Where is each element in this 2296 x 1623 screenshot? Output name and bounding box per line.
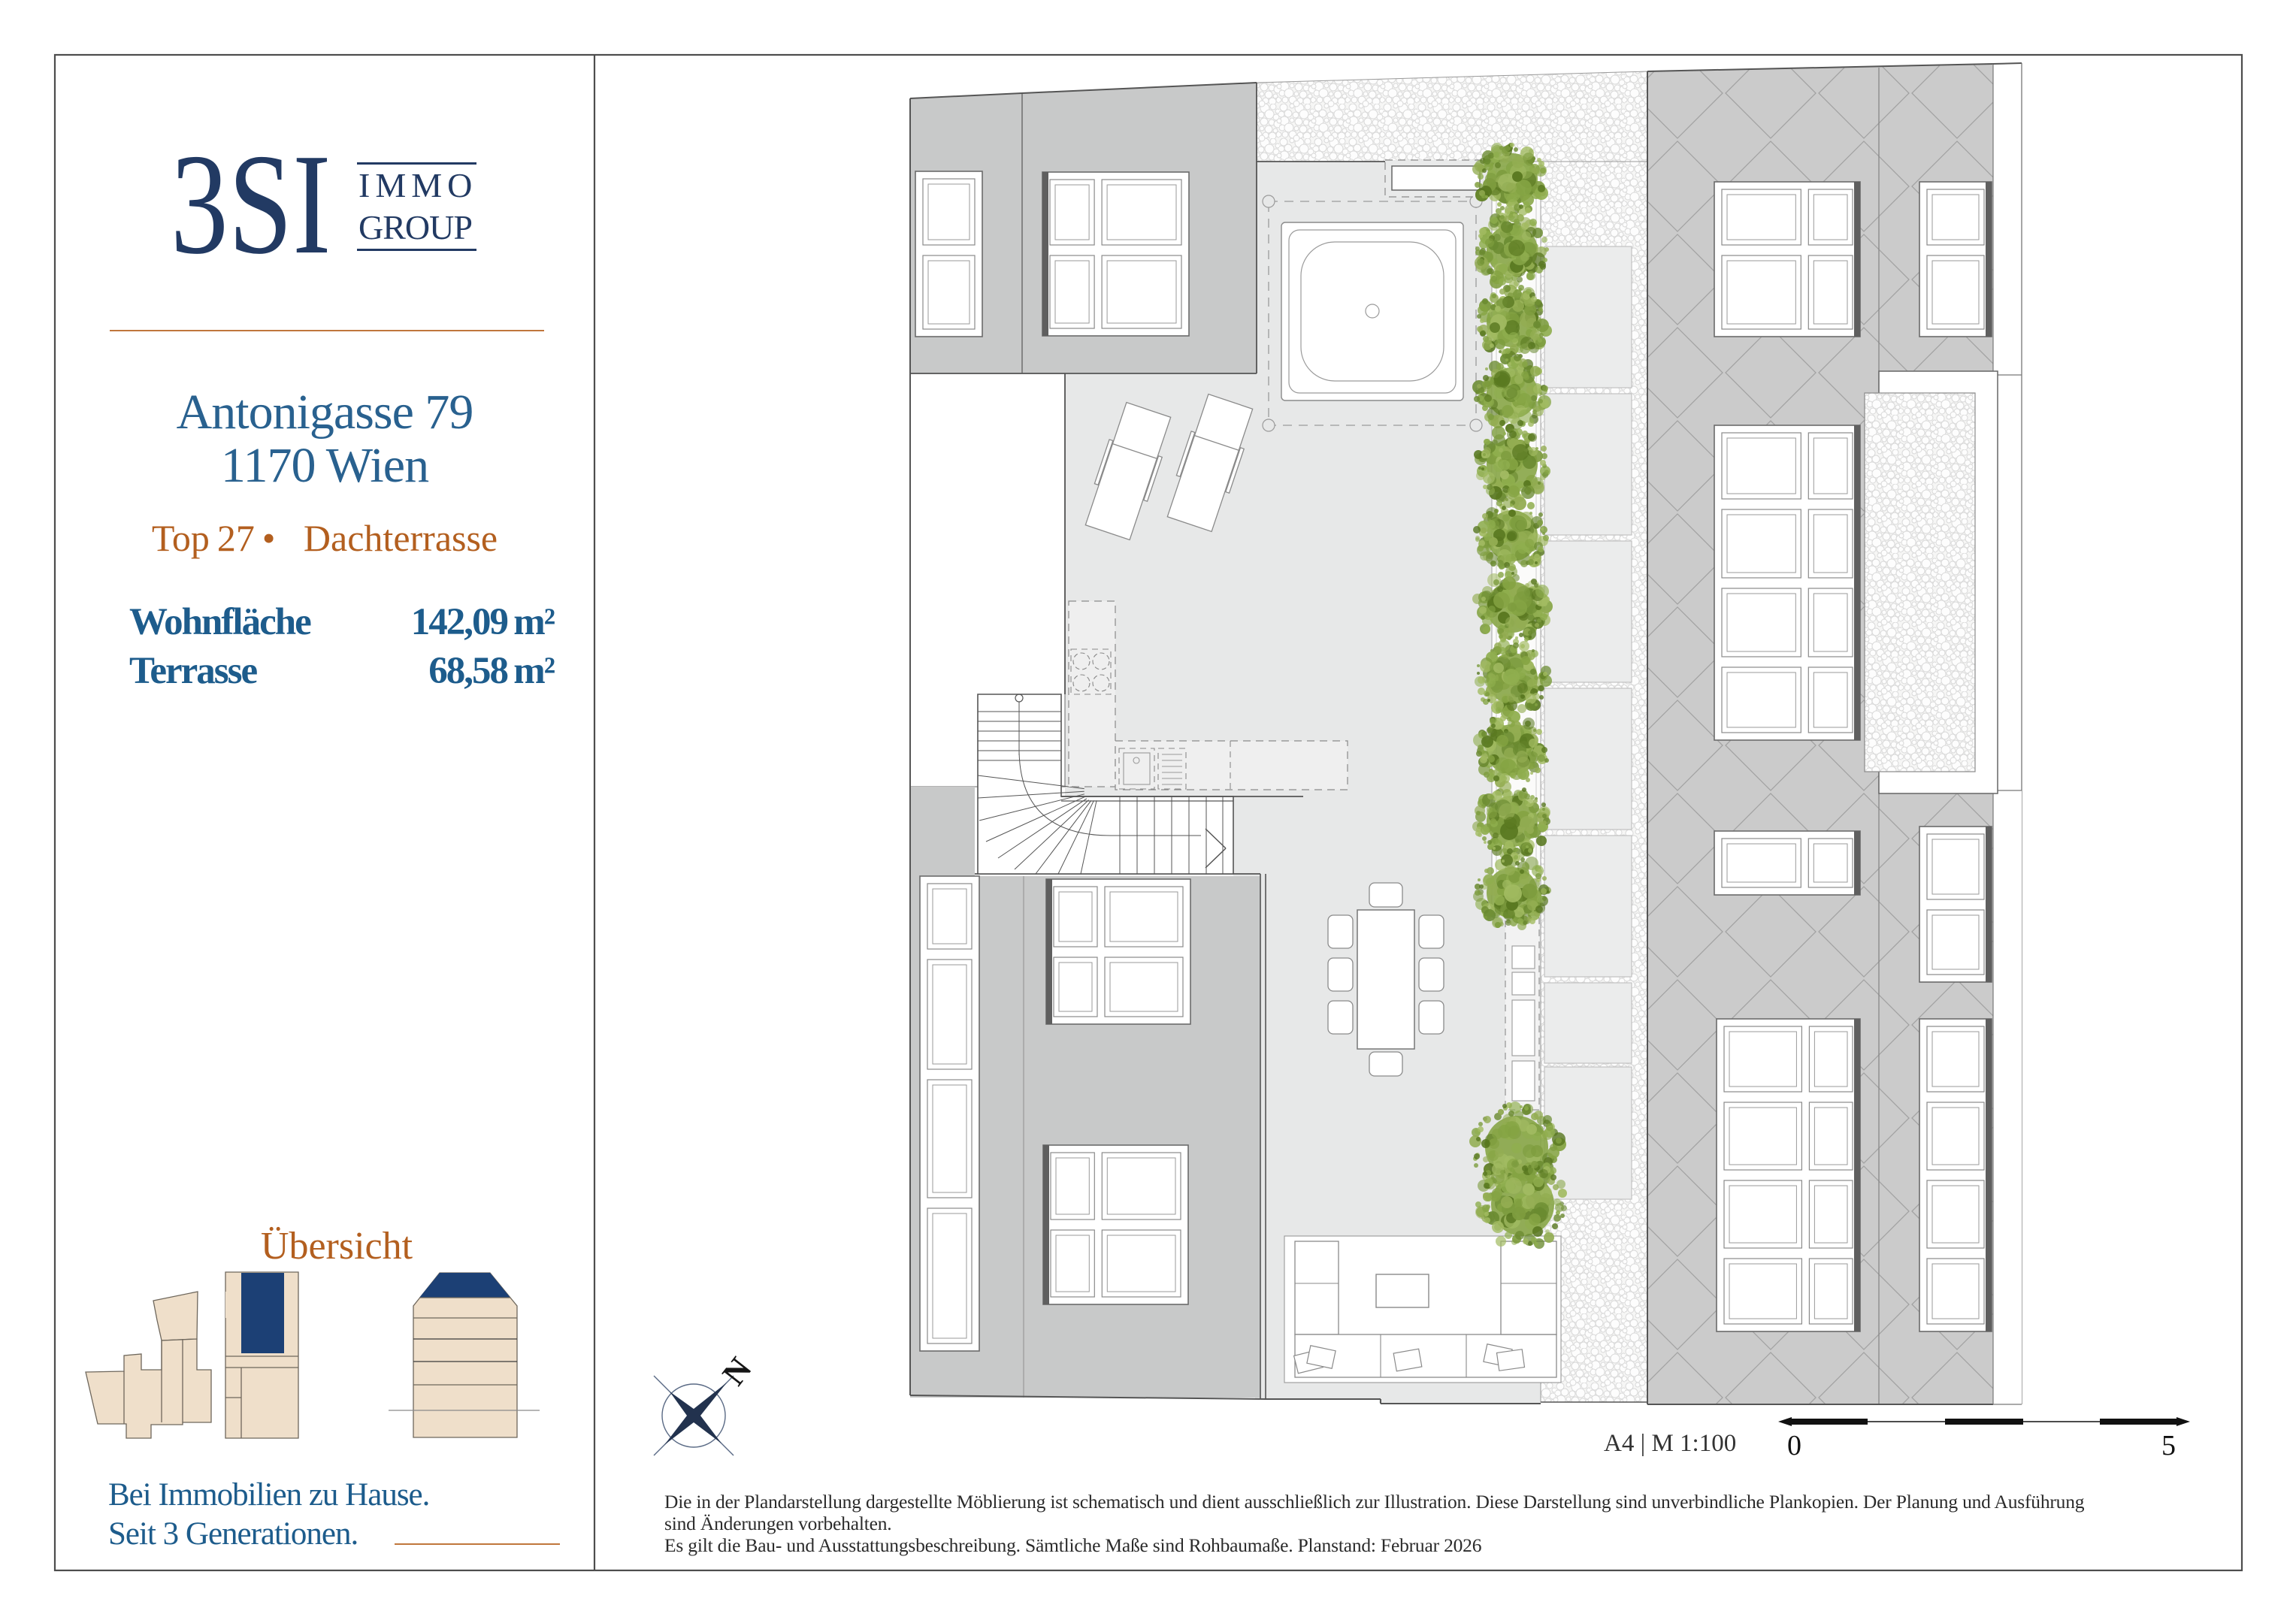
- svg-text:N: N: [715, 1350, 758, 1392]
